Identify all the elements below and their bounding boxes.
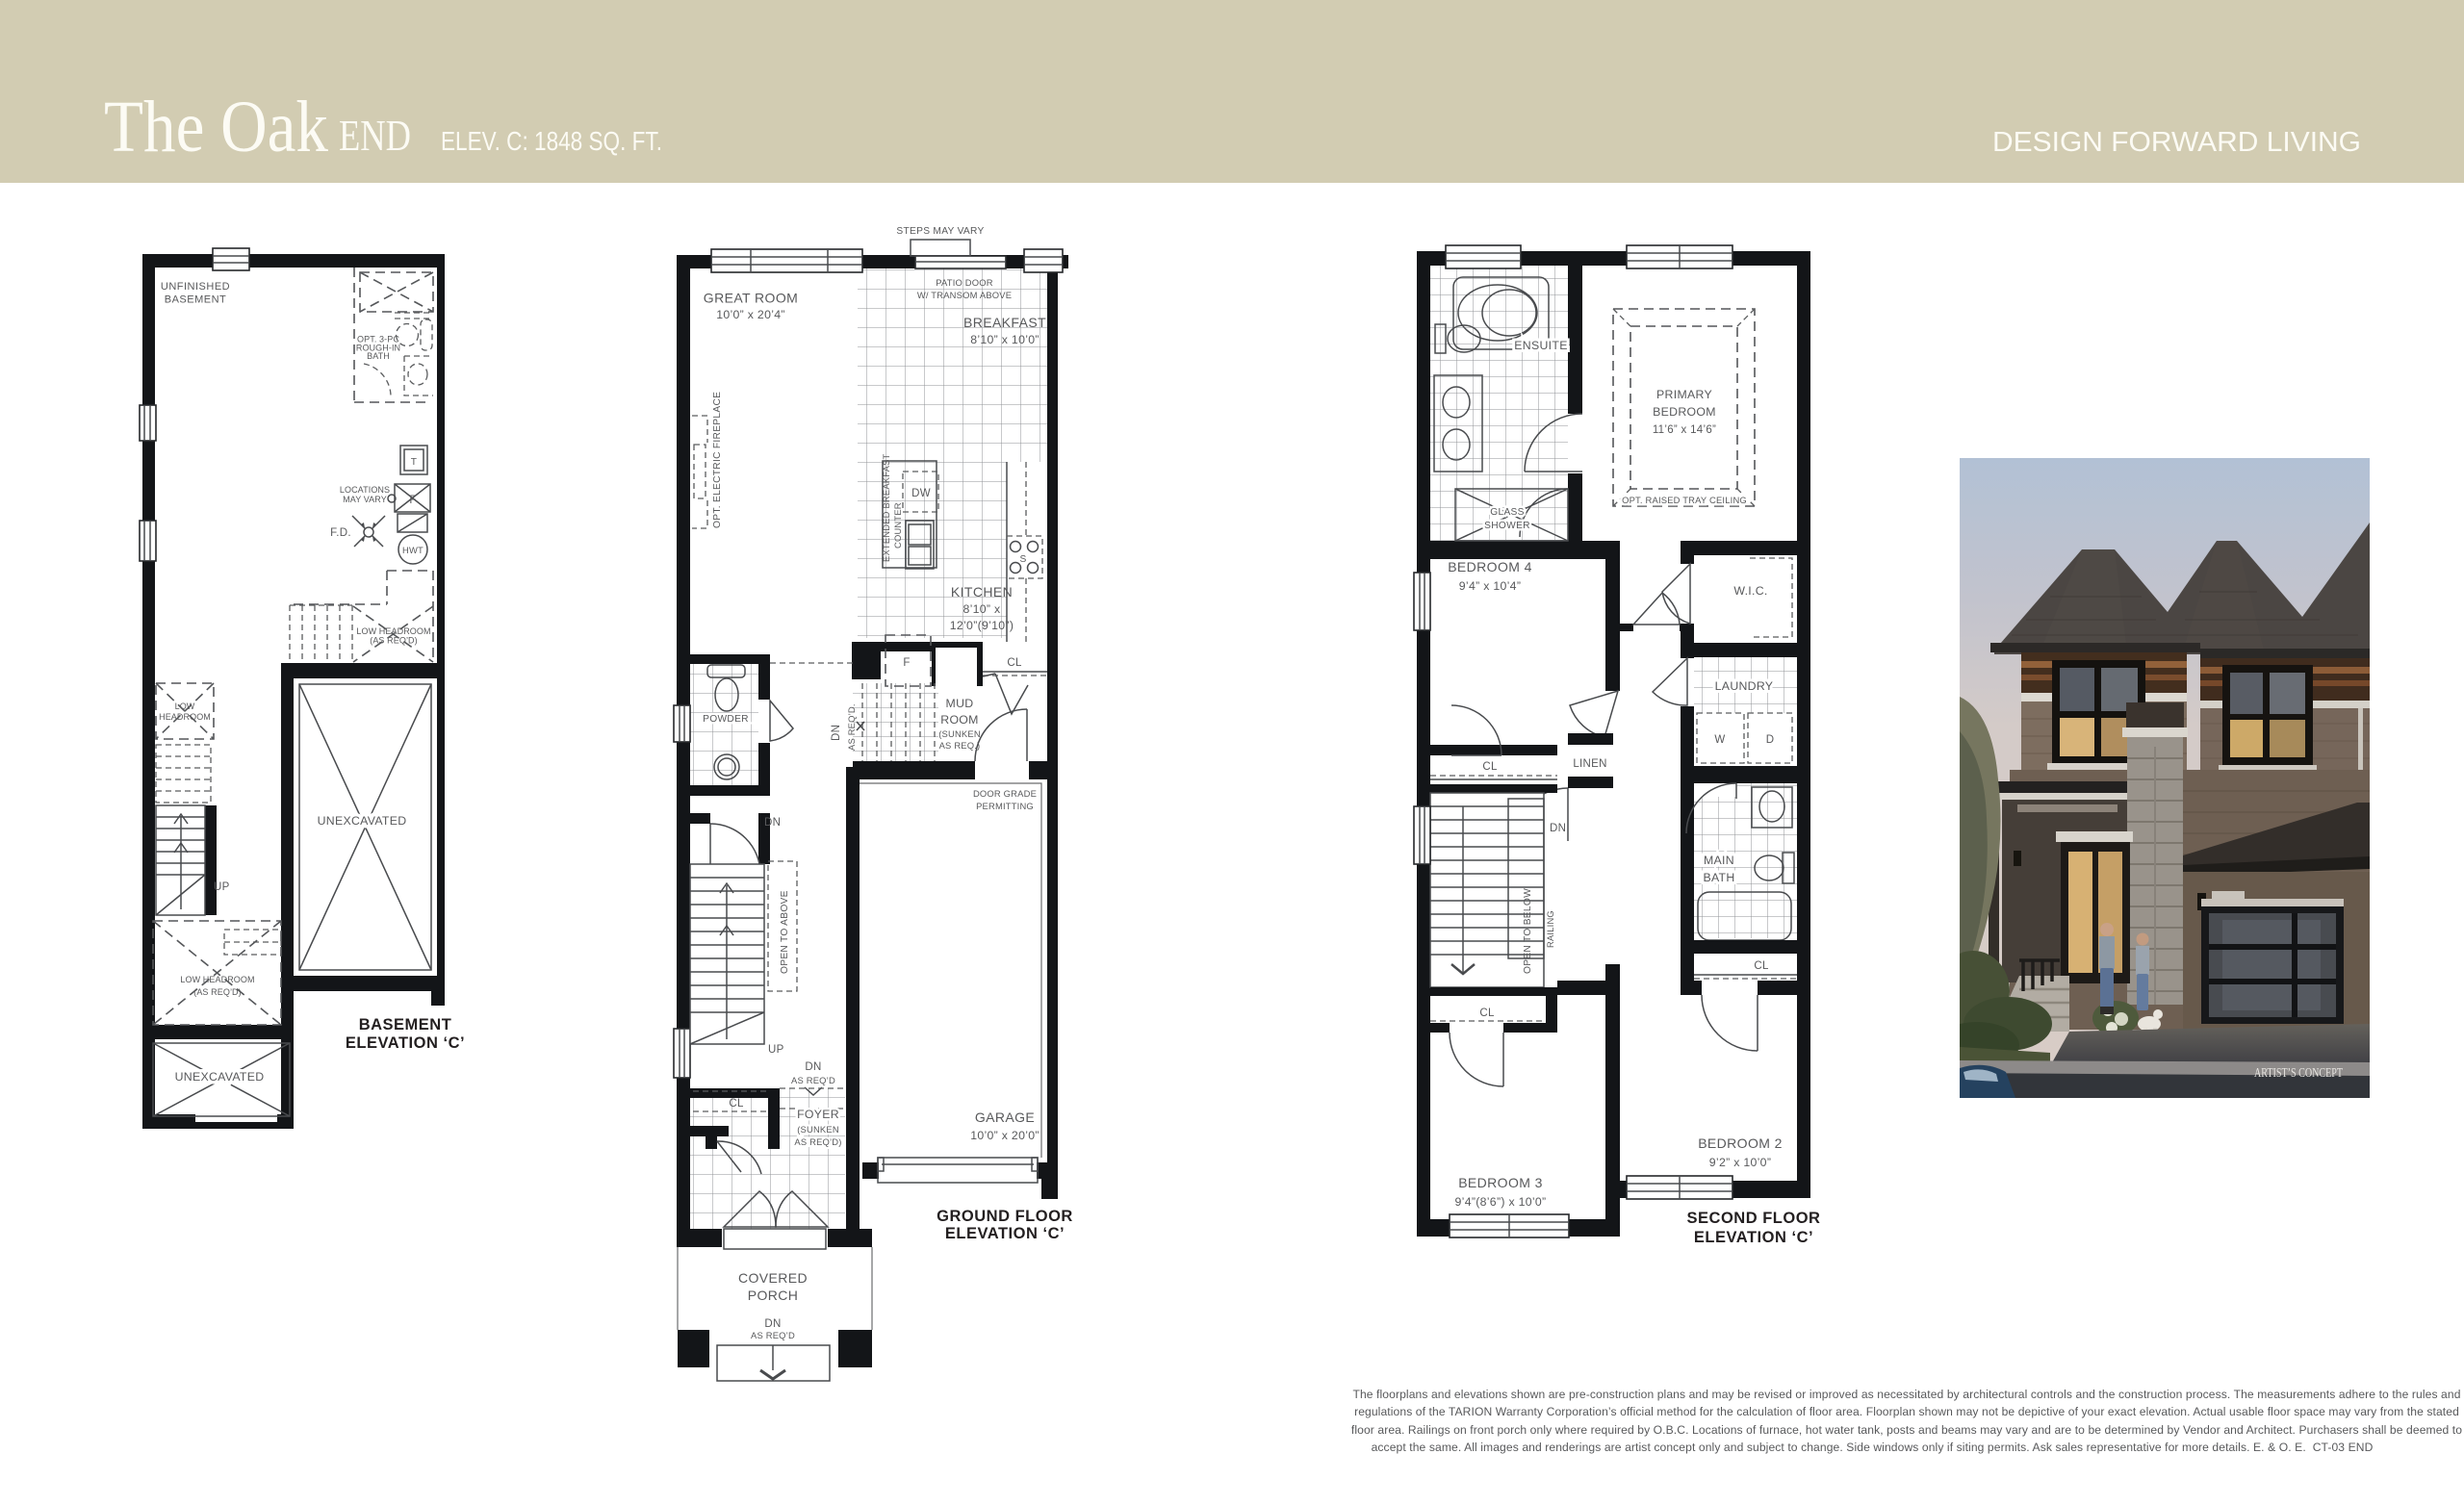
svg-text:RAILING: RAILING (1545, 910, 1555, 948)
svg-text:F: F (903, 657, 910, 669)
svg-text:SHOWER: SHOWER (1484, 521, 1530, 531)
svg-text:DOOR GRADE: DOOR GRADE (973, 788, 1037, 799)
svg-text:PATIO DOOR: PATIO DOOR (936, 277, 992, 288)
svg-text:(SUNKEN: (SUNKEN (938, 728, 981, 739)
svg-text:The Oak: The Oak (104, 87, 328, 167)
svg-text:KITCHEN: KITCHEN (951, 584, 1013, 599)
svg-text:BREAKFAST: BREAKFAST (963, 315, 1046, 330)
svg-text:END: END (339, 111, 411, 160)
svg-text:F.D.: F.D. (330, 527, 351, 539)
svg-text:11’6” x 14’6”: 11’6” x 14’6” (1653, 424, 1716, 436)
svg-text:BASEMENT: BASEMENT (165, 294, 227, 306)
svg-text:UNFINISHED: UNFINISHED (161, 281, 230, 293)
svg-text:BATH: BATH (1703, 871, 1734, 884)
svg-text:10’0” x 20’0”: 10’0” x 20’0” (970, 1129, 1039, 1142)
svg-text:ENSUITE: ENSUITE (1514, 339, 1567, 352)
svg-text:(SUNKEN: (SUNKEN (797, 1124, 839, 1135)
svg-text:(AS REQ’D): (AS REQ’D) (193, 987, 242, 997)
svg-text:8’10” x 10’0”: 8’10” x 10’0” (970, 333, 1039, 346)
svg-text:BEDROOM 3: BEDROOM 3 (1458, 1175, 1543, 1190)
svg-text:9’4” x 10’4”: 9’4” x 10’4” (1459, 579, 1521, 593)
svg-text:GROUND FLOOR: GROUND FLOOR (937, 1208, 1073, 1225)
svg-text:COVERED: COVERED (738, 1270, 808, 1286)
svg-text:ELEV. C: 1848 SQ. FT.: ELEV. C: 1848 SQ. FT. (441, 126, 662, 156)
svg-text:DESIGN FORWARD LIVING: DESIGN FORWARD LIVING (1992, 127, 2361, 158)
svg-text:W: W (1714, 734, 1725, 746)
svg-text:ARTIST’S CONCEPT: ARTIST’S CONCEPT (2254, 1066, 2343, 1081)
svg-text:ROOM: ROOM (940, 713, 978, 727)
svg-text:LOW HEADROOM: LOW HEADROOM (356, 626, 430, 636)
svg-text:OPEN TO ABOVE: OPEN TO ABOVE (780, 890, 790, 974)
svg-text:BEDROOM 4: BEDROOM 4 (1448, 559, 1532, 574)
svg-text:ELEVATION ‘C’: ELEVATION ‘C’ (945, 1225, 1065, 1242)
svg-text:CL: CL (1754, 960, 1769, 972)
svg-text:W.I.C.: W.I.C. (1733, 584, 1767, 598)
svg-text:MAY VARY: MAY VARY (343, 495, 387, 504)
svg-text:(AS REQ’D): (AS REQ’D) (370, 636, 418, 646)
svg-text:8’10” x: 8’10” x (962, 602, 1001, 616)
svg-text:BEDROOM 2: BEDROOM 2 (1698, 1135, 1783, 1151)
svg-text:AS REQ’D.: AS REQ’D. (846, 703, 857, 751)
svg-text:HWT: HWT (402, 545, 423, 555)
svg-text:DN: DN (764, 1318, 781, 1330)
svg-text:LOW HEADROOM: LOW HEADROOM (180, 975, 254, 984)
svg-text:OPEN TO BELOW: OPEN TO BELOW (1523, 888, 1533, 974)
svg-text:DN: DN (1550, 823, 1566, 834)
svg-text:AS REQ’D: AS REQ’D (751, 1330, 795, 1340)
svg-text:W/ TRANSOM ABOVE: W/ TRANSOM ABOVE (917, 290, 1012, 300)
svg-text:CL: CL (1482, 761, 1498, 773)
svg-text:UNEXCAVATED: UNEXCAVATED (318, 814, 407, 828)
svg-text:F: F (409, 495, 416, 506)
svg-text:OPT. ELECTRIC FIREPLACE: OPT. ELECTRIC FIREPLACE (712, 392, 723, 528)
svg-text:UP: UP (214, 881, 230, 893)
svg-text:AS REQ’D): AS REQ’D) (794, 1136, 841, 1147)
svg-text:D: D (1766, 734, 1775, 746)
svg-text:OPT. RAISED TRAY CEILING: OPT. RAISED TRAY CEILING (1622, 495, 1747, 505)
svg-text:CL: CL (1479, 1008, 1495, 1019)
svg-text:SECOND FLOOR: SECOND FLOOR (1687, 1210, 1821, 1227)
svg-text:ELEVATION ‘C’: ELEVATION ‘C’ (346, 1034, 465, 1052)
svg-text:DW: DW (911, 488, 931, 499)
svg-text:BATH: BATH (367, 351, 390, 361)
svg-text:AS REQ’D: AS REQ’D (791, 1075, 835, 1085)
svg-text:LOCATIONS: LOCATIONS (340, 485, 390, 495)
svg-text:DN: DN (831, 725, 842, 741)
svg-text:MAIN: MAIN (1704, 854, 1734, 867)
svg-text:DN: DN (764, 817, 781, 829)
svg-text:BEDROOM: BEDROOM (1653, 405, 1716, 419)
svg-text:The floorplans and elevations: The floorplans and elevations shown are … (1352, 1388, 2460, 1401)
svg-text:T: T (411, 457, 418, 468)
svg-text:UP: UP (768, 1044, 784, 1056)
svg-text:COUNTER: COUNTER (892, 502, 903, 548)
svg-text:HEADROOM: HEADROOM (159, 712, 211, 722)
svg-text:S: S (1019, 554, 1026, 565)
svg-text:PORCH: PORCH (748, 1288, 799, 1303)
svg-text:EXTENDED BREAKFAST: EXTENDED BREAKFAST (881, 453, 891, 562)
svg-text:LAUNDRY: LAUNDRY (1715, 679, 1774, 693)
svg-text:PRIMARY: PRIMARY (1656, 388, 1712, 401)
svg-text:CL: CL (729, 1098, 744, 1110)
svg-text:GREAT ROOM: GREAT ROOM (704, 291, 798, 306)
svg-text:DN: DN (805, 1061, 821, 1073)
svg-text:UNEXCAVATED: UNEXCAVATED (175, 1070, 265, 1084)
svg-text:LOW: LOW (175, 701, 195, 711)
svg-text:10’0” x 20’4”: 10’0” x 20’4” (716, 308, 785, 321)
svg-text:9’2” x 10’0”: 9’2” x 10’0” (1709, 1156, 1771, 1169)
svg-text:CL: CL (1007, 657, 1022, 669)
svg-text:FOYER: FOYER (797, 1108, 839, 1121)
svg-text:GLASS: GLASS (1490, 507, 1524, 518)
svg-text:AS REQ.): AS REQ.) (939, 740, 981, 751)
svg-text:POWDER: POWDER (703, 714, 749, 725)
svg-text:STEPS MAY VARY: STEPS MAY VARY (896, 226, 984, 237)
svg-text:MUD: MUD (946, 697, 974, 710)
svg-text:LINEN: LINEN (1573, 758, 1606, 770)
svg-text:ELEVATION ‘C’: ELEVATION ‘C’ (1694, 1229, 1813, 1246)
svg-text:regulations of the TARION Warr: regulations of the TARION Warranty Corpo… (1354, 1405, 2459, 1418)
svg-text:GARAGE: GARAGE (975, 1110, 1035, 1125)
svg-text:12’0”(9’10”): 12’0”(9’10”) (950, 619, 1014, 632)
svg-text:accept the same. All images an: accept the same. All images and renderin… (1372, 1441, 2374, 1454)
svg-text:BASEMENT: BASEMENT (359, 1016, 452, 1033)
svg-text:9’4”(8’6”) x 10’0”: 9’4”(8’6”) x 10’0” (1455, 1195, 1547, 1209)
svg-text:floor area. Railings on front: floor area. Railings on front porch only… (1351, 1423, 2462, 1437)
svg-text:PERMITTING: PERMITTING (976, 801, 1034, 811)
